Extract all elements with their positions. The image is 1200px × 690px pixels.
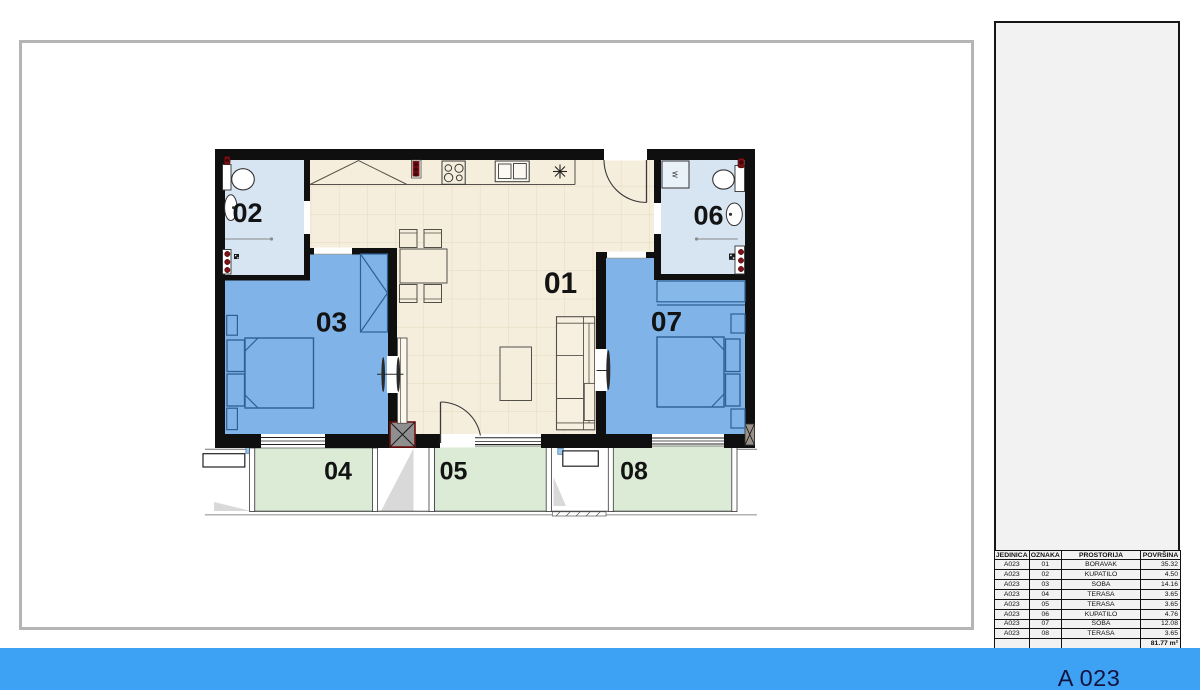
svg-text:08: 08	[620, 458, 648, 486]
svg-text:05: 05	[440, 458, 468, 486]
svg-text:04: 04	[324, 458, 352, 486]
svg-text:06: 06	[693, 201, 723, 231]
svg-text:w: w	[671, 170, 681, 178]
svg-text:07: 07	[651, 306, 682, 337]
svg-text:02: 02	[232, 198, 262, 228]
svg-text:03: 03	[316, 307, 347, 338]
svg-text:01: 01	[544, 267, 577, 300]
